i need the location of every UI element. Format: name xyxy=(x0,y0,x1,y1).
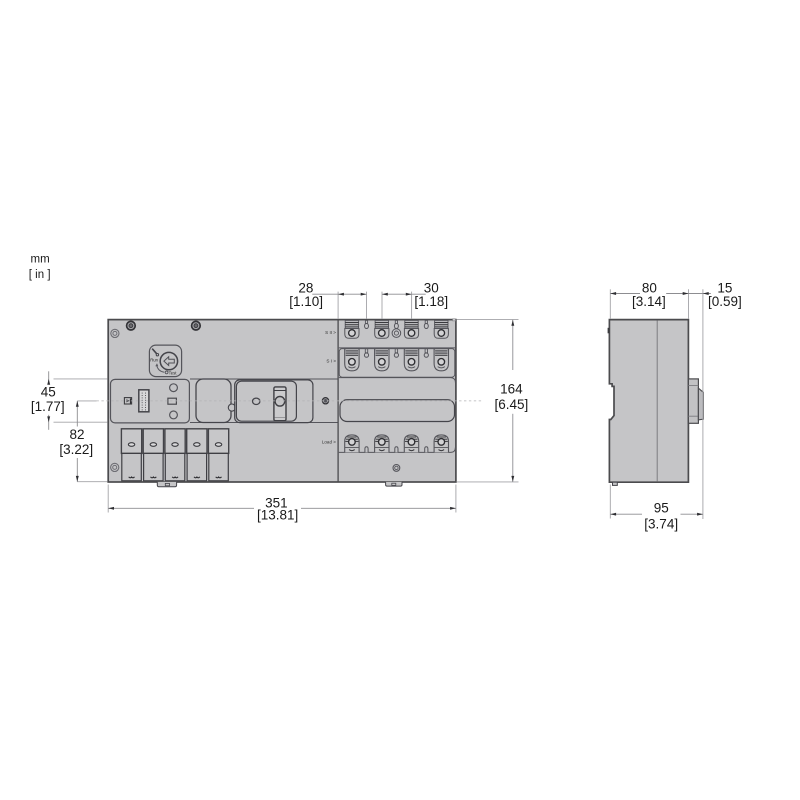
svg-text:95: 95 xyxy=(654,501,669,516)
svg-text:[1.77]: [1.77] xyxy=(31,399,65,414)
svg-text:82: 82 xyxy=(69,427,84,442)
svg-text:45: 45 xyxy=(41,384,56,399)
svg-text:Test: Test xyxy=(169,370,178,375)
svg-text:[13.81]: [13.81] xyxy=(257,507,298,522)
svg-text:mm: mm xyxy=(31,254,50,266)
svg-text:[1.10]: [1.10] xyxy=(289,294,323,309)
svg-text:[3.74]: [3.74] xyxy=(644,517,678,532)
svg-text:[0.59]: [0.59] xyxy=(708,294,742,309)
svg-text:[6.45]: [6.45] xyxy=(495,397,529,412)
svg-text:[3.14]: [3.14] xyxy=(632,294,666,309)
svg-text:164: 164 xyxy=(500,382,523,397)
svg-text:[1.18]: [1.18] xyxy=(414,294,448,309)
svg-text:Run: Run xyxy=(150,358,158,363)
svg-text:[ in ]: [ in ] xyxy=(29,269,51,281)
svg-text:S II >: S II > xyxy=(325,330,336,335)
svg-text:Load >: Load > xyxy=(322,439,336,444)
svg-text:S I >: S I > xyxy=(326,358,336,363)
svg-text:[3.22]: [3.22] xyxy=(59,442,93,457)
